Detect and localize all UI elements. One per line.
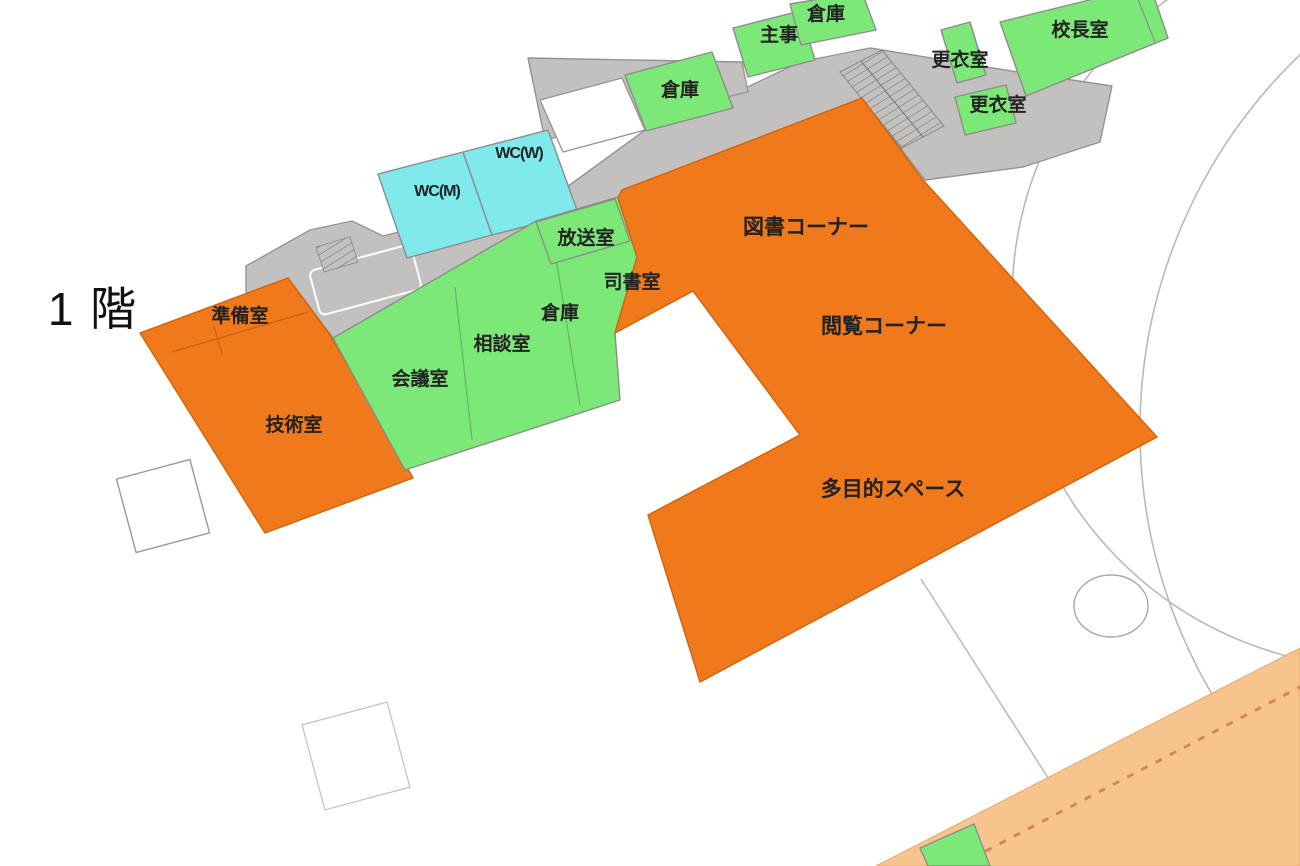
label-prep: 準備室 — [211, 304, 268, 327]
room-library-block — [615, 98, 1157, 682]
label-consultation: 相談室 — [473, 332, 530, 355]
label-storage-mid: 倉庫 — [540, 301, 579, 324]
ground-area — [876, 648, 1300, 866]
label-storage-top-left: 倉庫 — [660, 78, 699, 101]
label-storage-top-mid: 倉庫 — [806, 2, 845, 25]
label-changing-1: 更衣室 — [931, 48, 988, 71]
label-technology: 技術室 — [265, 413, 322, 436]
label-librarian: 司書室 — [603, 270, 660, 293]
yard-square-1 — [116, 459, 209, 552]
label-wc-m: WC(M) — [414, 183, 460, 200]
label-meeting: 会議室 — [391, 367, 448, 390]
label-library-corner: 図書コーナー — [743, 215, 869, 239]
yard-square-2 — [302, 702, 410, 810]
label-chief: 主事 — [760, 23, 798, 46]
label-changing-2: 更衣室 — [969, 93, 1026, 116]
label-wc-w: WC(W) — [495, 145, 543, 162]
label-reading-corner: 閲覧コーナー — [821, 314, 947, 338]
floor-plan-canvas: 1 階 倉庫 主事 倉庫 更衣室 更衣室 校長室 WC(M) WC(W) 放送室… — [0, 0, 1300, 866]
floor-plan-page: 1 階 倉庫 主事 倉庫 更衣室 更衣室 校長室 WC(M) WC(W) 放送室… — [0, 0, 1300, 866]
label-principal-office: 校長室 — [1051, 18, 1108, 41]
court-line — [921, 579, 1052, 784]
floor-label: 1 階 — [48, 283, 138, 335]
label-broadcast: 放送室 — [556, 226, 614, 249]
label-multipurpose: 多目的スペース — [821, 477, 965, 501]
playground-small-circle — [1074, 575, 1148, 637]
